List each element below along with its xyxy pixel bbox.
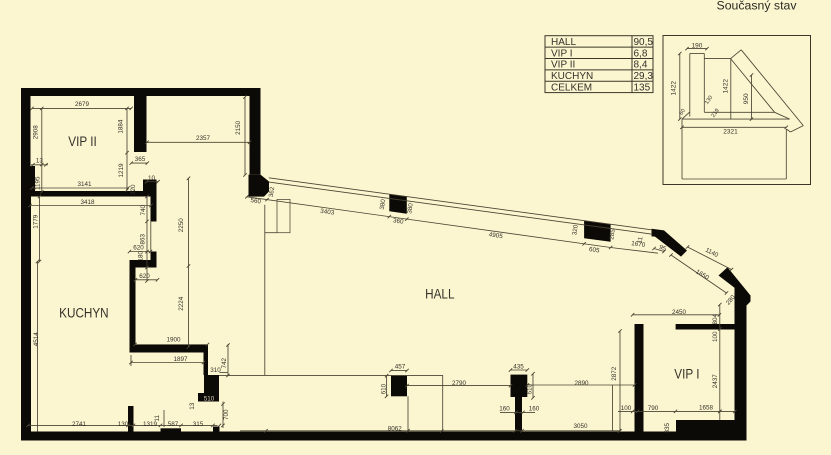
svg-text:362: 362 xyxy=(268,186,276,198)
svg-text:3141: 3141 xyxy=(77,181,92,188)
svg-text:510: 510 xyxy=(204,396,215,403)
svg-text:435: 435 xyxy=(513,364,524,371)
svg-text:1195: 1195 xyxy=(35,176,42,190)
svg-text:VIP I: VIP I xyxy=(551,48,573,59)
svg-text:310: 310 xyxy=(210,367,221,374)
svg-text:4514: 4514 xyxy=(33,332,40,347)
svg-text:320: 320 xyxy=(130,184,137,195)
svg-text:HALL: HALL xyxy=(551,37,576,48)
svg-text:100: 100 xyxy=(621,405,632,412)
svg-text:620: 620 xyxy=(139,273,150,280)
svg-text:605: 605 xyxy=(589,246,601,254)
svg-text:742: 742 xyxy=(221,357,228,368)
svg-text:380: 380 xyxy=(406,202,414,214)
svg-text:130: 130 xyxy=(118,421,129,428)
svg-text:VIP I: VIP I xyxy=(674,365,699,381)
svg-text:1422: 1422 xyxy=(671,81,678,96)
svg-text:863: 863 xyxy=(140,233,147,244)
svg-text:2357: 2357 xyxy=(196,135,211,142)
svg-text:1658: 1658 xyxy=(699,405,714,412)
svg-text:160: 160 xyxy=(499,406,510,413)
svg-text:1779: 1779 xyxy=(33,214,40,229)
svg-text:135: 135 xyxy=(634,82,651,93)
svg-text:2908: 2908 xyxy=(33,125,40,140)
svg-text:610: 610 xyxy=(527,383,534,394)
svg-text:790: 790 xyxy=(648,405,659,412)
svg-text:2790: 2790 xyxy=(452,380,467,387)
svg-text:2872: 2872 xyxy=(611,366,618,381)
svg-text:KUCHYN: KUCHYN xyxy=(551,71,593,82)
svg-text:1900: 1900 xyxy=(166,337,181,344)
svg-text:2741: 2741 xyxy=(72,421,87,428)
svg-text:2321: 2321 xyxy=(723,128,738,135)
svg-text:610: 610 xyxy=(380,383,387,394)
svg-text:10: 10 xyxy=(148,175,156,182)
svg-text:8062: 8062 xyxy=(388,425,403,432)
svg-text:HALL: HALL xyxy=(425,285,454,301)
svg-text:380: 380 xyxy=(379,198,387,210)
svg-text:6,8: 6,8 xyxy=(634,48,648,59)
svg-text:1897: 1897 xyxy=(173,356,188,363)
svg-text:KUCHYN: KUCHYN xyxy=(59,305,109,321)
svg-text:2450: 2450 xyxy=(672,309,687,316)
svg-text:11: 11 xyxy=(154,414,161,421)
svg-text:2890: 2890 xyxy=(574,380,589,387)
svg-text:13: 13 xyxy=(189,402,196,410)
svg-text:VIP II: VIP II xyxy=(551,60,575,71)
svg-text:804: 804 xyxy=(712,313,719,324)
svg-text:180: 180 xyxy=(138,250,145,261)
svg-text:700: 700 xyxy=(223,409,230,420)
svg-text:1422: 1422 xyxy=(722,79,729,94)
svg-text:365: 365 xyxy=(135,156,146,163)
svg-text:560: 560 xyxy=(250,197,262,205)
svg-text:335: 335 xyxy=(664,422,671,433)
svg-text:2250: 2250 xyxy=(178,218,185,233)
svg-text:2437: 2437 xyxy=(712,374,719,389)
svg-text:VIP II: VIP II xyxy=(68,133,96,149)
svg-text:13: 13 xyxy=(36,157,44,164)
svg-text:100: 100 xyxy=(712,331,719,342)
svg-text:2224: 2224 xyxy=(178,296,185,311)
svg-text:2679: 2679 xyxy=(75,101,90,108)
svg-text:587: 587 xyxy=(168,421,179,428)
svg-text:950: 950 xyxy=(743,93,750,104)
svg-text:CELKEM: CELKEM xyxy=(551,82,592,93)
svg-text:315: 315 xyxy=(193,421,204,428)
svg-text:1884: 1884 xyxy=(118,119,125,134)
svg-text:Současný stav: Současný stav xyxy=(717,0,798,13)
svg-text:740: 740 xyxy=(140,204,147,215)
svg-text:29,3: 29,3 xyxy=(634,71,654,82)
svg-text:160: 160 xyxy=(529,406,540,413)
svg-text:285: 285 xyxy=(608,228,616,240)
svg-text:90,5: 90,5 xyxy=(634,37,654,48)
svg-text:3418: 3418 xyxy=(80,199,95,206)
svg-text:620: 620 xyxy=(133,245,144,252)
svg-text:320: 320 xyxy=(571,224,579,236)
svg-text:8,4: 8,4 xyxy=(634,60,648,71)
svg-text:190: 190 xyxy=(692,42,703,49)
svg-text:3050: 3050 xyxy=(573,423,588,430)
svg-text:2150: 2150 xyxy=(235,120,242,135)
svg-text:1219: 1219 xyxy=(118,163,125,178)
svg-text:457: 457 xyxy=(395,364,406,371)
